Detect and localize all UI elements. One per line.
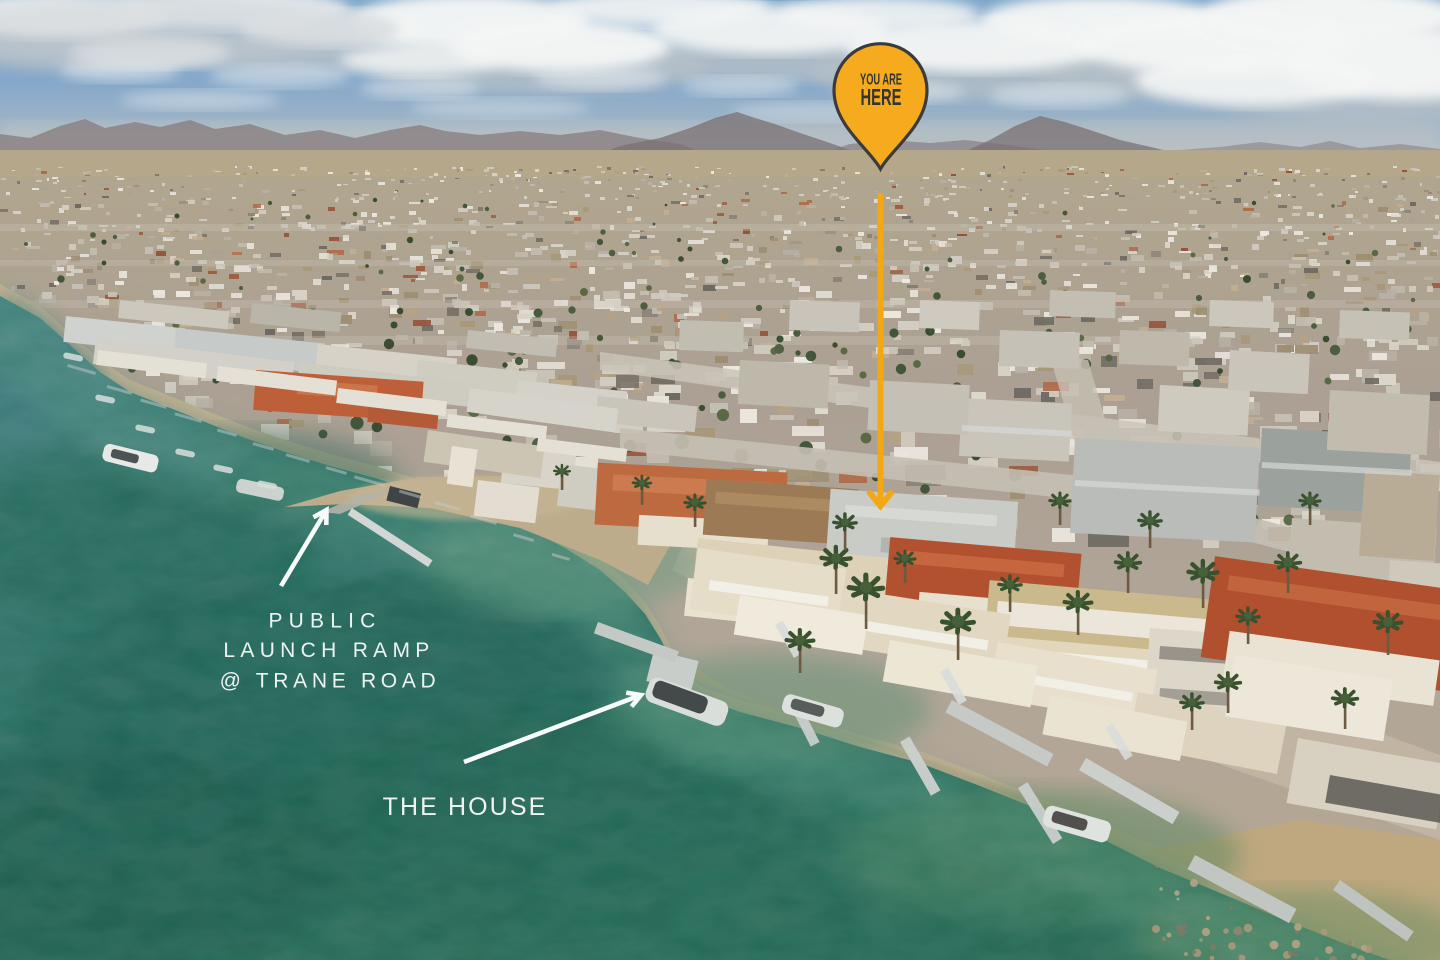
svg-text:THE HOUSE: THE HOUSE xyxy=(383,793,548,821)
svg-text:HERE: HERE xyxy=(861,84,902,110)
svg-text:LAUNCH RAMP: LAUNCH RAMP xyxy=(223,639,434,662)
svg-text:@ TRANE ROAD: @ TRANE ROAD xyxy=(220,670,441,693)
svg-text:PUBLIC: PUBLIC xyxy=(268,610,381,633)
